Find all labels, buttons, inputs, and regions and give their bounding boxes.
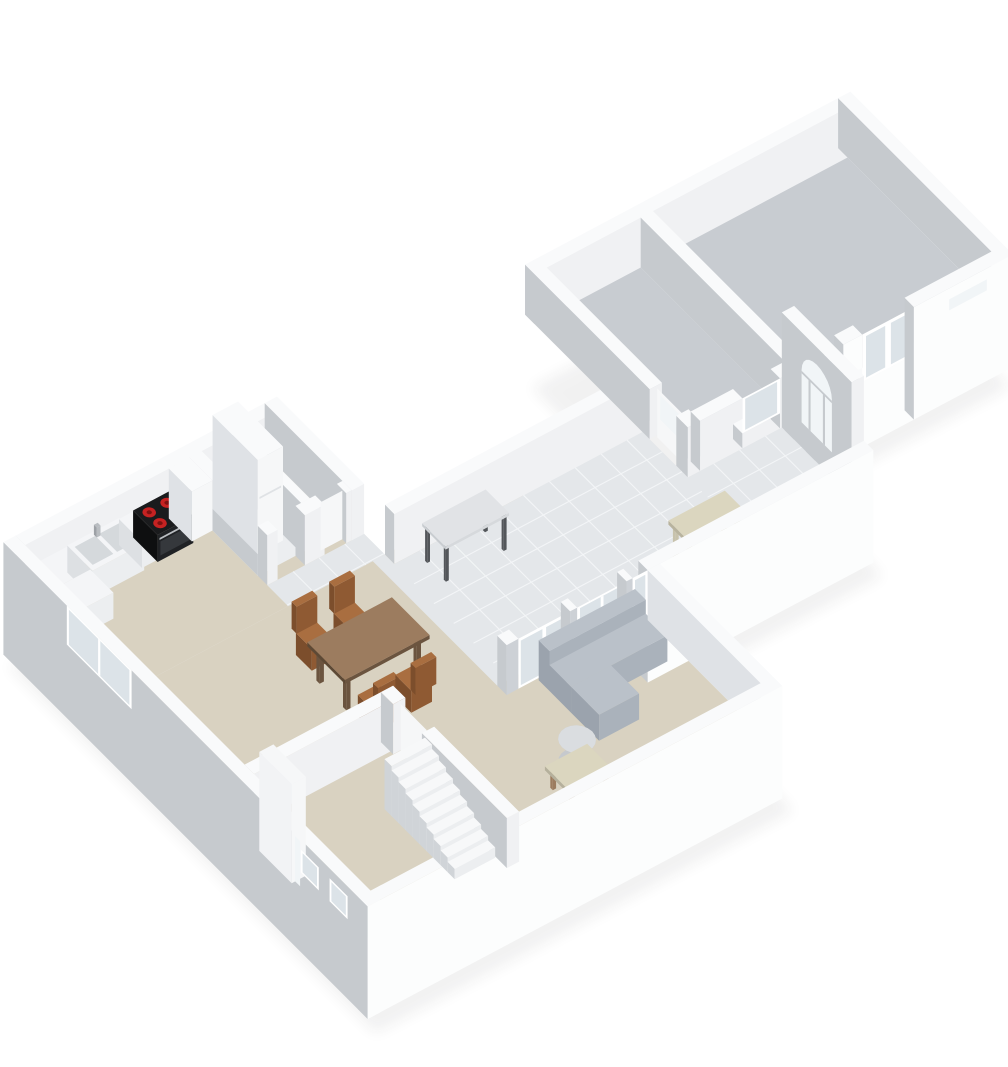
staircase-step-3-sw-face: [399, 782, 406, 830]
hall-desk-legs-1-sw-face: [425, 527, 427, 563]
front-door-sidelight: [295, 836, 300, 886]
hall-nw-wall-sw-face: [385, 505, 394, 564]
entry-ne-wall-b-se-face: [507, 812, 519, 869]
wing-se-facade-c-sw-face: [905, 298, 914, 420]
floorplan-viewport: [0, 0, 1008, 1067]
hall-desk-legs-4-sw-face: [502, 515, 504, 551]
hall-desk-legs-3-se-face: [446, 546, 449, 582]
storage-se-wall-a-sw-face: [691, 412, 700, 471]
dining-chair-2-back-sw-face: [329, 582, 334, 614]
sw-facade-se-face: [368, 900, 380, 1019]
glazing-stub-a-se-face: [507, 639, 519, 695]
arch-mullion-b: [823, 393, 825, 445]
closet-front-wall-b-sw-face: [296, 506, 305, 565]
sink-faucet-se-face: [97, 526, 101, 538]
kitchen-window-mullion: [98, 639, 100, 676]
staircase-step-4-sw-face: [406, 793, 413, 837]
arch-mullion-a: [809, 379, 811, 431]
glazing-stub-a-sw-face: [497, 636, 506, 695]
closet-front-wall-c-se-face: [346, 490, 352, 543]
dining-chair-1-back-sw-face: [292, 602, 297, 634]
staircase-step-2-sw-face: [392, 771, 399, 824]
north-side-wall-se-face: [352, 484, 364, 541]
closet-front-wall-a-sw-face: [258, 526, 267, 585]
staircase-step-1-sw-face: [385, 759, 392, 816]
hall-desk-legs-3-sw-face: [444, 546, 446, 582]
closet-front-wall-a-se-face: [267, 530, 277, 586]
hall-desk-legs-4-se-face: [504, 516, 507, 552]
dining-chair-4-back-sw-face: [411, 663, 416, 695]
floorplan-3d-scene: [0, 0, 1008, 1067]
